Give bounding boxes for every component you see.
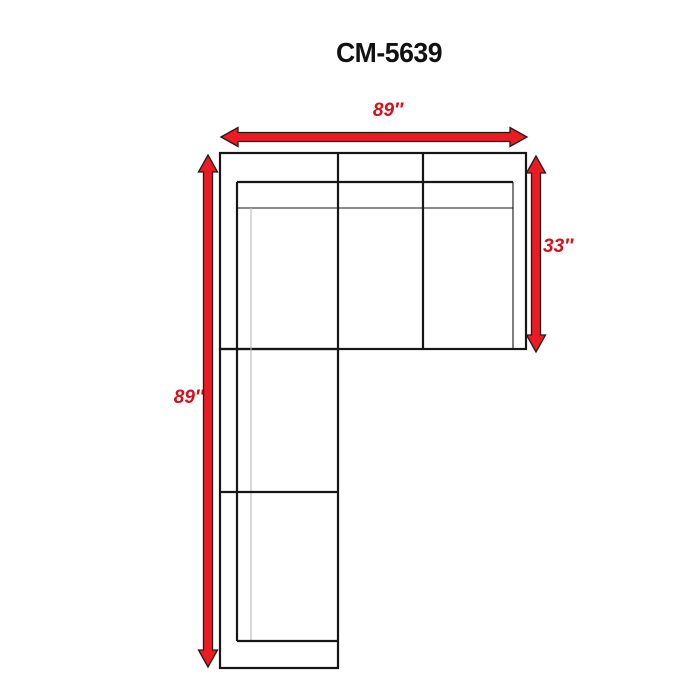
left-length-arrow <box>199 155 218 667</box>
dimension-drawing-page: CM-5639 89″ 33″ 89″ <box>0 0 700 700</box>
sectional-sofa-diagram <box>0 0 700 700</box>
right-depth-arrow <box>527 156 546 352</box>
top-width-arrow <box>221 128 527 147</box>
sofa-outline-group <box>220 153 526 668</box>
